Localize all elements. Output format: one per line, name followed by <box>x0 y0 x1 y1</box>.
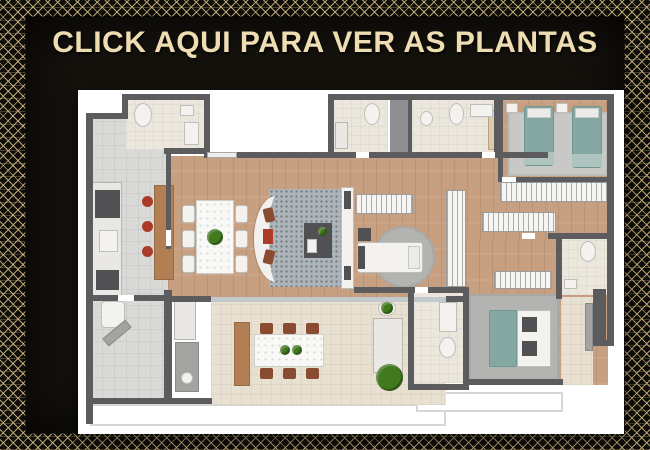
banner-panel: CLICK AQUI PARA VER AS PLANTAS <box>26 17 624 433</box>
nightstand <box>556 103 568 113</box>
wall <box>463 287 469 390</box>
bed-cushion <box>522 317 537 332</box>
large-plant <box>376 364 403 391</box>
wall <box>408 100 412 154</box>
bed-cushion <box>522 341 537 356</box>
cabinet <box>174 296 196 340</box>
bathtub <box>184 122 199 145</box>
coffee-table <box>307 239 317 253</box>
floorplan-card[interactable] <box>78 90 624 434</box>
wall <box>86 113 93 424</box>
kitchen-sink <box>99 230 118 252</box>
wall <box>204 94 210 154</box>
wardrobe <box>500 182 609 202</box>
door-opening <box>502 177 516 182</box>
door-opening <box>166 230 171 246</box>
dining-chair <box>182 205 195 223</box>
water-heater <box>175 342 199 392</box>
stool <box>142 196 153 207</box>
dining-chair <box>182 255 195 273</box>
wall <box>328 94 614 100</box>
sink <box>180 105 194 116</box>
dining-chair <box>182 230 195 248</box>
heater-dial <box>181 372 193 384</box>
wall <box>498 94 503 182</box>
wall <box>556 237 562 299</box>
bed-pillow <box>408 246 420 269</box>
side-plant <box>318 227 327 236</box>
tall-closet <box>446 190 466 287</box>
wall <box>593 340 614 346</box>
potted-plant <box>381 302 393 314</box>
wardrobe <box>494 271 552 289</box>
door-opening <box>118 295 134 301</box>
bed-foot-blanket <box>572 154 602 167</box>
sideboard <box>234 322 250 386</box>
curved-sofa <box>254 196 298 282</box>
terrace-chair <box>260 368 273 379</box>
wall <box>408 287 414 390</box>
wall <box>593 289 606 345</box>
stove <box>95 190 120 218</box>
toilet <box>580 241 596 262</box>
terrace-chair <box>283 323 296 334</box>
click-to-view-plans-banner[interactable]: CLICK AQUI PARA VER AS PLANTAS <box>26 26 624 60</box>
terrace-chair <box>260 323 273 334</box>
door-opening <box>522 233 535 239</box>
toilet <box>449 103 464 125</box>
balcony-bench <box>585 303 593 351</box>
wall <box>607 94 614 344</box>
wall <box>168 296 211 302</box>
bed-pillow <box>575 108 599 118</box>
vanity-counter <box>470 104 493 117</box>
toilet <box>134 103 152 127</box>
bed-footboard <box>358 246 365 269</box>
oven <box>96 270 119 290</box>
dining-chair <box>235 230 248 248</box>
kitchen-island <box>154 185 174 280</box>
table-plant <box>292 345 302 355</box>
stool <box>142 246 153 257</box>
wardrobe <box>482 212 556 232</box>
door-opening <box>482 152 495 158</box>
table-plant <box>280 345 290 355</box>
vanity-counter <box>439 302 457 332</box>
toilet <box>364 103 380 125</box>
shower <box>335 122 348 149</box>
sofa-cushion <box>263 229 273 244</box>
door-opening <box>415 287 428 293</box>
tv-console <box>344 266 351 280</box>
double-bed-duvet <box>489 310 517 367</box>
promo-banner: CLICK AQUI PARA VER AS PLANTAS <box>0 0 650 450</box>
shaft <box>390 100 410 154</box>
toilet <box>439 337 456 358</box>
wall <box>408 384 469 390</box>
wall <box>86 398 212 404</box>
window <box>207 152 237 158</box>
terrace-chair <box>283 368 296 379</box>
balcony-apron-left <box>90 404 446 426</box>
terrace-chair <box>306 323 319 334</box>
dining-chair <box>235 255 248 273</box>
wall <box>463 379 563 385</box>
floorplan-image <box>78 90 624 434</box>
sink <box>420 111 433 126</box>
nightstand <box>506 103 518 113</box>
wall <box>328 94 334 158</box>
desk <box>358 228 371 241</box>
wall <box>548 233 614 239</box>
tv <box>344 191 351 209</box>
door-opening <box>356 152 369 158</box>
wall <box>122 94 210 100</box>
wardrobe <box>355 194 413 214</box>
dining-chair <box>235 205 248 223</box>
bed-pillow <box>527 108 551 118</box>
stool <box>142 221 153 232</box>
sink <box>564 279 577 289</box>
wall <box>164 290 172 402</box>
terrace-chair <box>306 368 319 379</box>
centerpiece-plant <box>207 229 223 245</box>
